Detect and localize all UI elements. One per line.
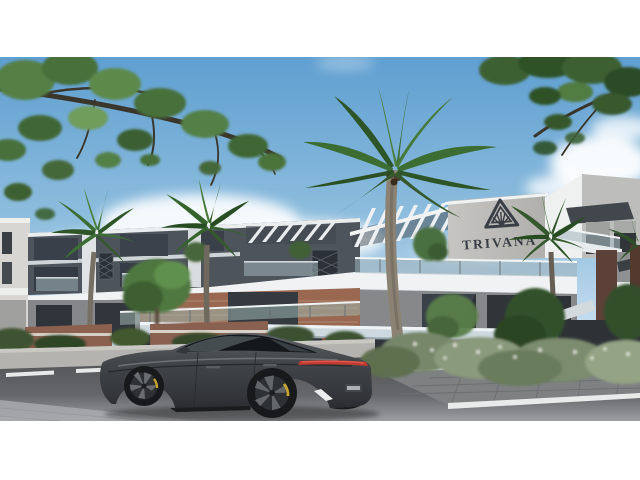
background-building-left [0,218,30,340]
letterbox-bottom [0,421,640,480]
letterbox-top [0,0,640,57]
front-wheel [124,366,164,406]
rear-wheel [247,368,297,418]
rendering-image: TRIVANA [0,0,640,480]
